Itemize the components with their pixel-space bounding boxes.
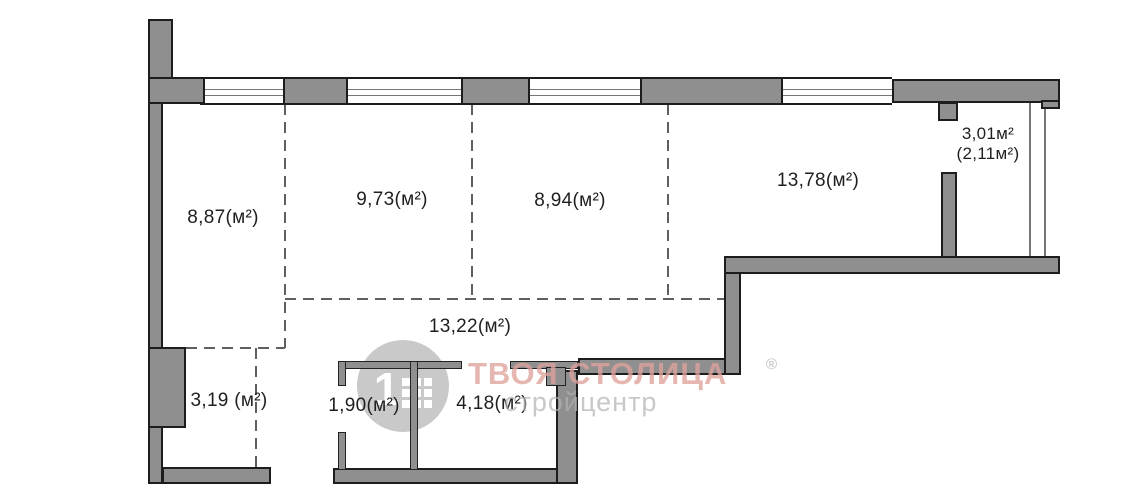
partition-left-190-upper <box>338 361 346 386</box>
dashed-corridor-boundary <box>285 298 725 300</box>
balcony-area-label: 3,01м² <box>962 124 1014 144</box>
room-label-3-19: 3,19 (м²) <box>190 390 267 412</box>
watermark-registered-icon: ® <box>766 356 777 373</box>
balcony-glazing-line-2 <box>1044 103 1046 257</box>
wall-balcony-divider <box>941 172 957 258</box>
partition-top-190-418 <box>338 361 462 369</box>
wall-left-foot <box>148 77 205 104</box>
dashed-divider-horizontal-2 <box>186 347 285 349</box>
room-label-8-94: 8,94(м²) <box>534 190 605 212</box>
wall-balcony-bottom <box>724 256 1060 274</box>
wall-balcony-top-corner <box>1041 100 1060 109</box>
partition-between-190-418 <box>410 361 418 470</box>
dashed-divider-vertical-2 <box>471 104 473 300</box>
watermark-subtitle-text: стройцентр <box>504 387 657 418</box>
floor-plan: 1 8,87(м²) 9,73(м²) 8,94(м²) 13,78(м²) <box>0 0 1132 493</box>
window-pillar-3 <box>640 77 783 105</box>
dashed-divider-vertical-3 <box>667 104 669 300</box>
corridor-label-13-22: 13,22(м²) <box>429 316 511 338</box>
window-pillar-1 <box>283 77 348 105</box>
balcony-reduced-area-label: (2,11м²) <box>957 144 1020 164</box>
room-label-9-73: 9,73(м²) <box>356 189 427 211</box>
wall-bottom-center <box>333 468 578 484</box>
balcony-glazing-line-1 <box>1029 103 1031 257</box>
partition-left-190-lower <box>338 432 346 470</box>
wall-top-left-cap <box>148 19 173 79</box>
wall-left-protrusion <box>148 347 186 428</box>
dashed-divider-vertical-1 <box>284 104 286 348</box>
room-label-13-78: 13,78(м²) <box>777 170 859 192</box>
room-label-8-87: 8,87(м²) <box>187 207 258 229</box>
room-label-1-90: 1,90(м²) <box>328 395 399 417</box>
wall-bottom-left <box>162 467 271 484</box>
wall-balcony-stub <box>938 102 958 121</box>
wall-balcony-top <box>892 79 1060 103</box>
window-pillar-2 <box>461 77 530 105</box>
watermark-logo-circle: 1 <box>357 340 449 432</box>
